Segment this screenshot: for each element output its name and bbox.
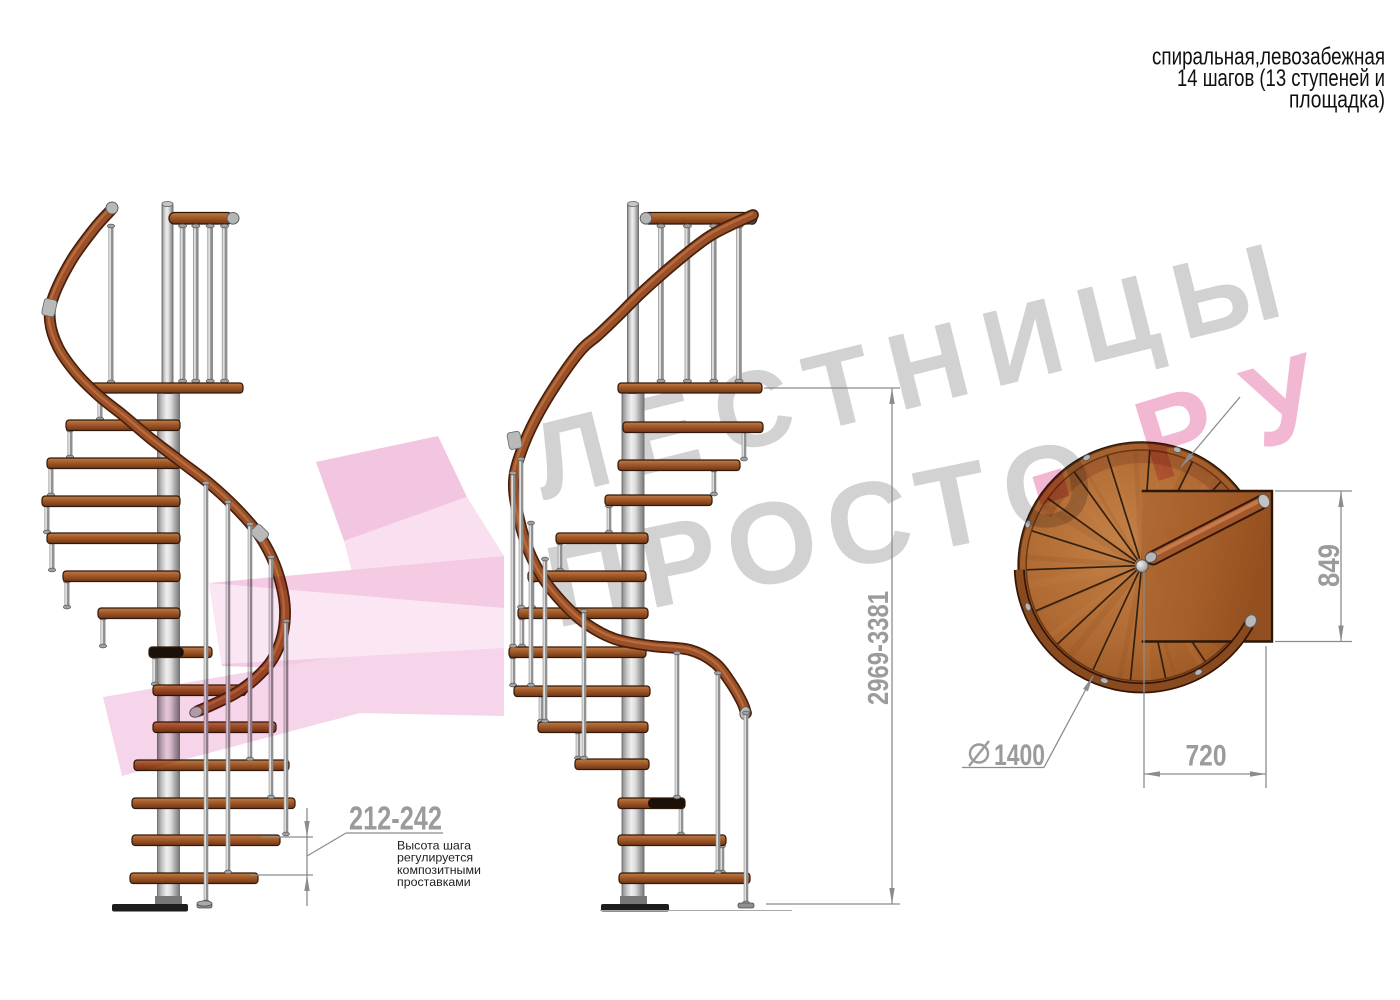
svg-text:1400: 1400 xyxy=(994,739,1045,772)
svg-text:2969-3381: 2969-3381 xyxy=(863,591,895,705)
svg-text:720: 720 xyxy=(1186,740,1227,773)
svg-text:849: 849 xyxy=(1313,544,1346,587)
svg-text:Высота шагарегулируетсякомпози: Высота шагарегулируетсякомпозитнымипрост… xyxy=(397,839,481,890)
svg-text:212-242: 212-242 xyxy=(349,800,442,837)
